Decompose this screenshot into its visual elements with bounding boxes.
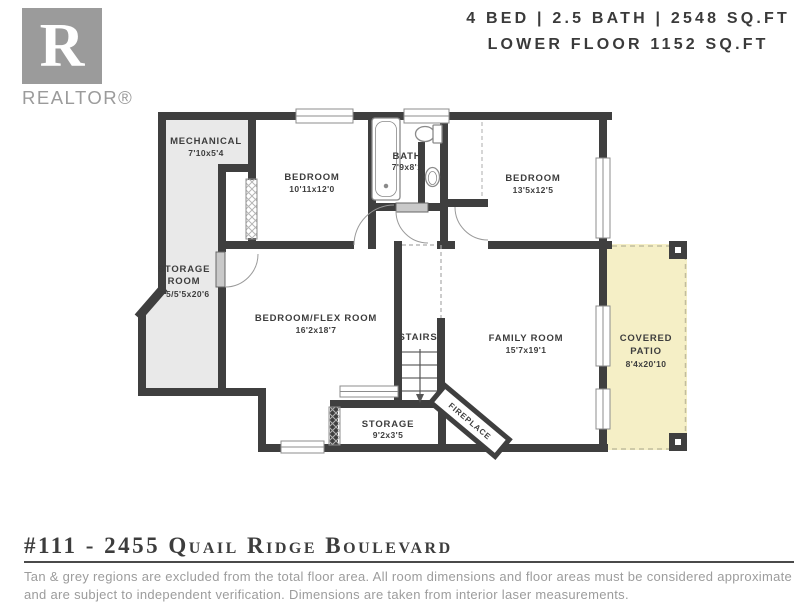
footer-divider xyxy=(24,561,794,563)
storage-room-door-swing xyxy=(225,254,258,287)
room-dims-storage-room: 7'5/5'5x20'6 xyxy=(158,289,209,299)
disclaimer-text: Tan & grey regions are excluded from the… xyxy=(24,568,794,603)
room-dims-flex-room: 16'2x18'7 xyxy=(296,325,337,335)
floor-plan: FIREPLACE MECHANICAL 7'10x5'4 BEDROOM 10… xyxy=(0,0,800,600)
room-label-bedroom2: BEDROOM xyxy=(505,173,560,184)
stairs-graphic xyxy=(402,245,441,403)
bath-door-swing xyxy=(396,211,428,243)
room-label-family-room: FAMILY ROOM xyxy=(489,333,564,344)
bifold-storage-door xyxy=(329,407,340,445)
bifold-closet-door xyxy=(246,179,257,239)
toilet xyxy=(416,127,435,142)
bedroom2-door-swing xyxy=(455,207,488,240)
room-dims-bath: 7'9x8'1 xyxy=(392,162,422,172)
room-label-mechanical: MECHANICAL xyxy=(170,136,242,147)
room-label-patio-2: PATIO xyxy=(630,346,662,357)
room-dims-mechanical: 7'10x5'4 xyxy=(188,148,224,158)
room-dims-bedroom1: 10'11x12'0 xyxy=(289,184,334,194)
room-label-storage-room-1: STORAGE xyxy=(158,264,210,275)
footer: #111 - 2455 Quail Ridge Boulevard Tan & … xyxy=(24,533,794,603)
room-label-patio-1: COVERED xyxy=(620,333,673,344)
room-label-bath: BATH xyxy=(393,151,422,162)
room-label-stairs: STAIRS xyxy=(399,332,438,343)
room-dims-family-room: 15'7x19'1 xyxy=(506,345,547,355)
room-dims-patio: 8'4x20'10 xyxy=(626,359,667,369)
storage-room-door-leaf xyxy=(216,252,225,287)
room-dims-storage2: 9'2x3'5 xyxy=(373,430,403,440)
room-label-flex-room: BEDROOM/FLEX ROOM xyxy=(255,313,377,324)
room-label-bedroom1: BEDROOM xyxy=(284,172,339,183)
listing-address: #111 - 2455 Quail Ridge Boulevard xyxy=(24,533,794,559)
room-label-storage-room-2: ROOM xyxy=(168,276,201,287)
room-dims-bedroom2: 13'5x12'5 xyxy=(513,185,554,195)
room-label-storage2: STORAGE xyxy=(362,419,414,430)
bath-door-threshold xyxy=(396,203,428,212)
